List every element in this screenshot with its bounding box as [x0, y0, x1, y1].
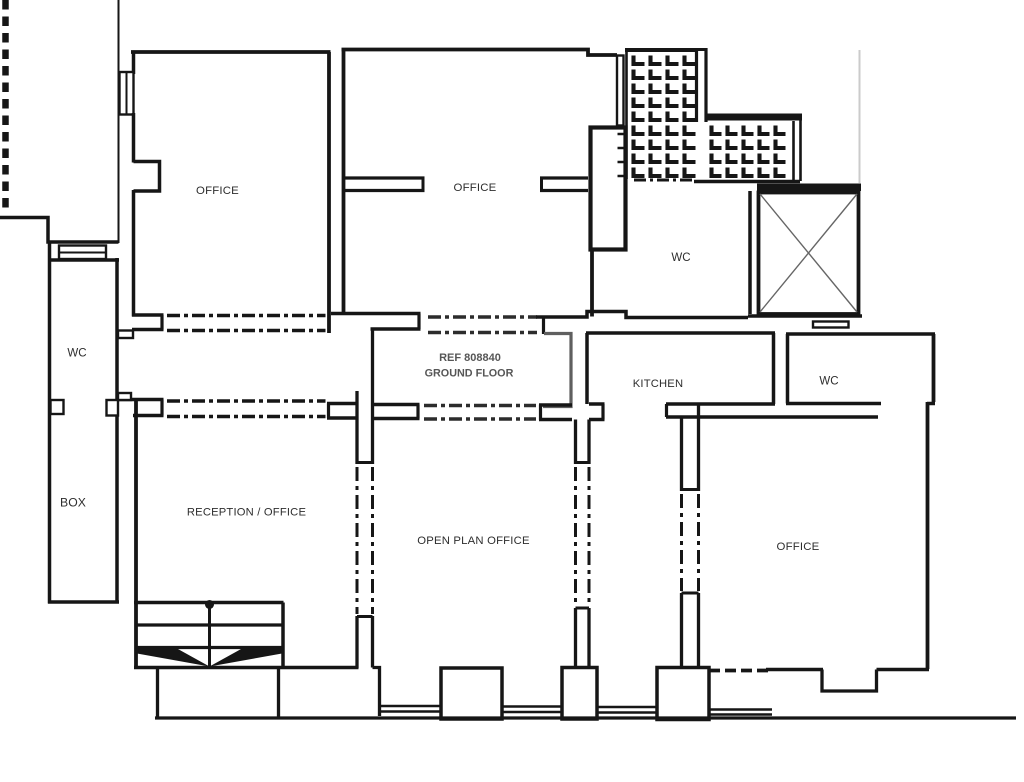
svg-text:KITCHEN: KITCHEN — [633, 378, 684, 390]
svg-text:OFFICE: OFFICE — [777, 541, 820, 553]
svg-text:WC: WC — [67, 348, 86, 360]
svg-text:OFFICE: OFFICE — [454, 182, 497, 194]
svg-text:WC: WC — [819, 376, 838, 388]
svg-text:BOX: BOX — [60, 496, 86, 510]
svg-text:RECEPTION / OFFICE: RECEPTION / OFFICE — [187, 507, 306, 519]
svg-text:REF 808840: REF 808840 — [439, 352, 501, 364]
svg-text:GROUND FLOOR: GROUND FLOOR — [425, 368, 514, 380]
svg-text:OPEN PLAN OFFICE: OPEN PLAN OFFICE — [417, 535, 530, 547]
svg-text:WC: WC — [671, 252, 690, 264]
svg-text:OFFICE: OFFICE — [196, 185, 239, 197]
